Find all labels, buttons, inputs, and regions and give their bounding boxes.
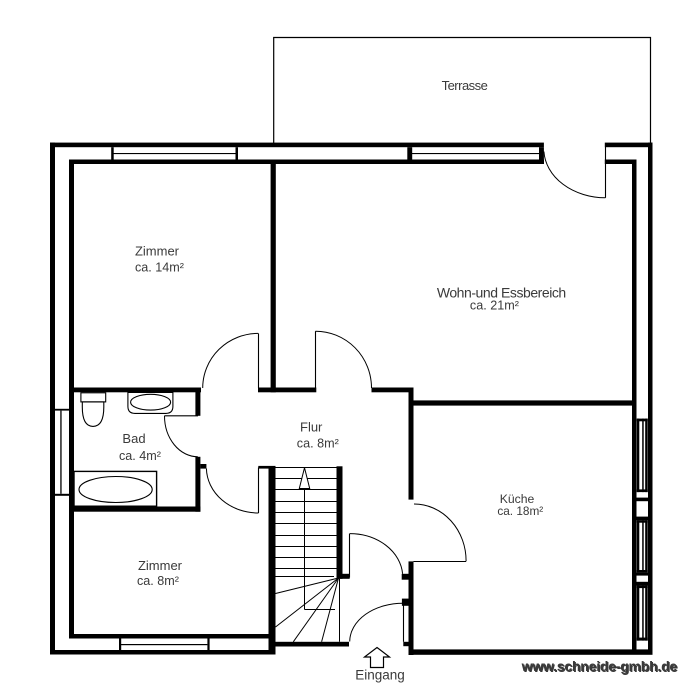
svg-text:ca. 4m²: ca. 4m²: [119, 449, 161, 463]
svg-text:Flur: Flur: [300, 420, 323, 435]
svg-text:ca. 8m²: ca. 8m²: [137, 574, 179, 588]
svg-text:ca. 21m²: ca. 21m²: [470, 299, 519, 313]
svg-text:Terrasse: Terrasse: [442, 78, 488, 93]
svg-text:ca. 14m²: ca. 14m²: [135, 260, 184, 274]
svg-text:Bad: Bad: [122, 431, 145, 446]
svg-text:Zimmer: Zimmer: [138, 558, 183, 573]
svg-text:www.schneide-gmbh.de: www.schneide-gmbh.de: [521, 658, 678, 674]
svg-text:Eingang: Eingang: [355, 668, 405, 683]
svg-text:Zimmer: Zimmer: [135, 244, 180, 259]
svg-text:ca. 8m²: ca. 8m²: [297, 437, 339, 451]
svg-text:ca. 18m²: ca. 18m²: [497, 504, 543, 518]
